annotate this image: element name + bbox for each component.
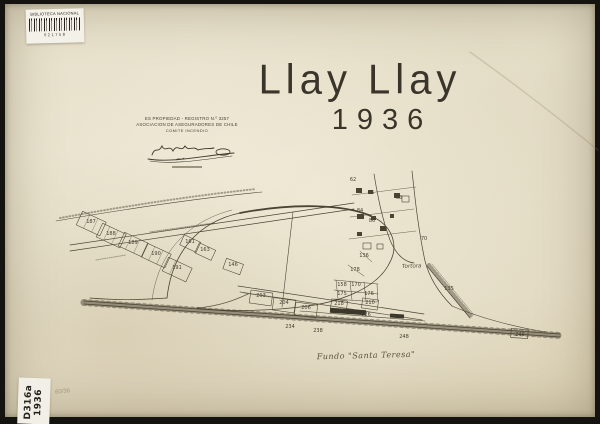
scanned-map-page: BIBLIOTECA NACIONAL 021758 Llay Llay 193… — [0, 0, 600, 424]
parcel-label: 226 — [361, 312, 371, 318]
parcel-label: 146 — [228, 262, 238, 268]
parcel-label: 170 — [351, 282, 361, 288]
parcel-label: 206 — [301, 305, 311, 311]
parcel-label: 70 — [421, 236, 427, 242]
parcel-label: 191 — [172, 265, 182, 271]
parcel-label: 188 — [106, 231, 116, 237]
parcel-label: 136 — [359, 253, 369, 259]
parcel-label: 158 — [337, 282, 347, 288]
parcel-label: 187 — [86, 219, 96, 225]
parcel-label: 66 — [368, 190, 374, 196]
parcel-label: 88 — [381, 227, 387, 233]
parcel-label: 190 — [151, 251, 161, 257]
parcel-label: 68 — [396, 195, 402, 201]
parcel-label: 175 — [337, 291, 347, 297]
parcel-label: 176 — [364, 291, 374, 297]
parcel-label: 218 — [334, 301, 344, 307]
parcel-label: 238 — [313, 328, 323, 334]
parcel-label: 204 — [279, 300, 289, 306]
shelf-year: 1936 — [33, 378, 45, 424]
parcel-label: 84 — [357, 208, 363, 214]
parcel-label: 246 — [515, 332, 525, 338]
parcel-label: 189 — [128, 240, 138, 246]
parcel-label: 210 — [365, 300, 375, 306]
parcel-label: 135 — [444, 286, 454, 292]
parcel-label: 86 — [369, 218, 375, 224]
parcel-label: 161 — [185, 239, 195, 245]
shelf-sticker-text: D316a 1936 — [23, 378, 45, 424]
map-area-label: Tortora — [402, 263, 422, 270]
parcel-label: 248 — [399, 334, 409, 340]
parcel-label: 203 — [256, 293, 266, 299]
parcel-label: 178 — [350, 267, 360, 273]
parcel-label: 163 — [200, 247, 210, 253]
parcel-label: 62 — [350, 177, 356, 183]
shelf-sticker: D316a 1936 — [17, 377, 51, 424]
parcel-label: 234 — [285, 324, 295, 330]
